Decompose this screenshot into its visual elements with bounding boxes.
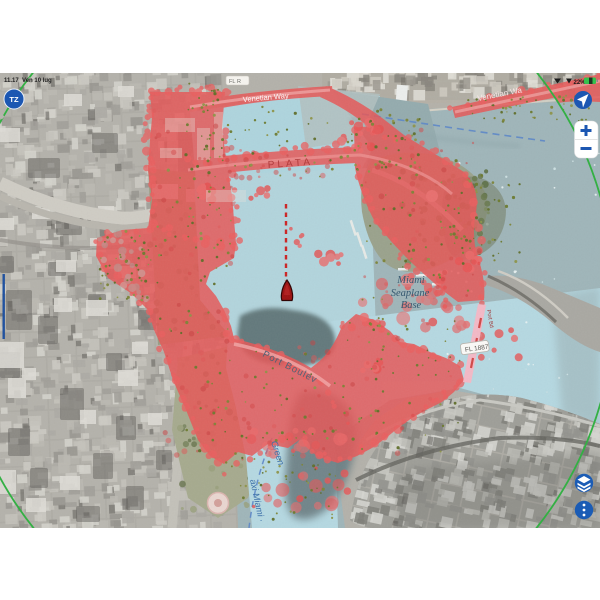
- svg-text:TZ: TZ: [9, 95, 19, 104]
- svg-text:11.17 Ven 10 lug: 11.17 Ven 10 lug: [4, 78, 52, 84]
